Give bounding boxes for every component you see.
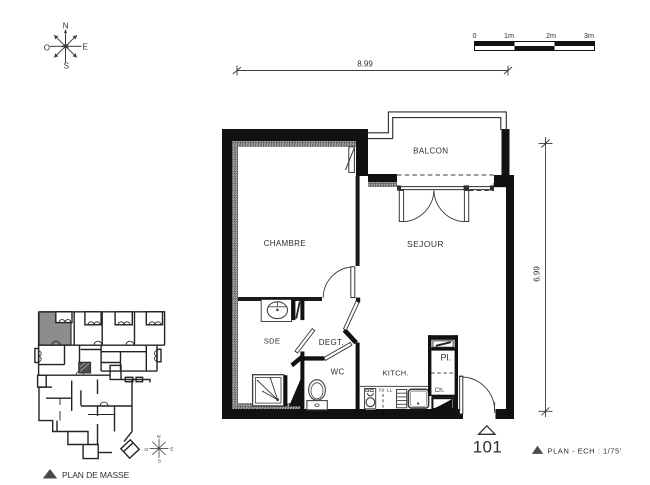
- svg-text:O: O: [44, 44, 50, 53]
- svg-text:1m: 1m: [504, 31, 514, 40]
- svg-text:Pl.: Pl.: [441, 353, 452, 363]
- svg-text:S: S: [158, 459, 161, 465]
- svg-text:PLAN - ECH : 1/75': PLAN - ECH : 1/75': [548, 447, 622, 456]
- svg-text:PLAN DE MASSE: PLAN DE MASSE: [62, 470, 130, 480]
- svg-text:N: N: [157, 434, 161, 440]
- svg-text:N: N: [63, 22, 69, 31]
- svg-text:DEGT.: DEGT.: [319, 338, 344, 347]
- svg-text:SEJOUR: SEJOUR: [407, 239, 444, 249]
- svg-text:CHAMBRE: CHAMBRE: [264, 239, 306, 248]
- svg-text:0: 0: [473, 31, 477, 40]
- svg-text:KITCH.: KITCH.: [383, 368, 409, 377]
- svg-text:LL: LL: [387, 388, 393, 394]
- svg-text:O: O: [144, 447, 148, 453]
- svg-text:8.99: 8.99: [357, 60, 373, 69]
- svg-text:Ch.: Ch.: [435, 387, 445, 394]
- svg-text:WC: WC: [331, 367, 345, 376]
- svg-text:6.99: 6.99: [533, 266, 542, 282]
- svg-text:S: S: [64, 62, 69, 71]
- svg-text:3m: 3m: [584, 31, 594, 40]
- svg-text:SDE: SDE: [264, 336, 280, 345]
- svg-text:2m: 2m: [546, 31, 556, 40]
- svg-text:E: E: [83, 43, 88, 52]
- svg-text:101: 101: [473, 437, 503, 456]
- svg-text:BALCON: BALCON: [413, 147, 448, 156]
- svg-text:F.: F.: [379, 388, 383, 394]
- svg-text:E: E: [170, 446, 173, 452]
